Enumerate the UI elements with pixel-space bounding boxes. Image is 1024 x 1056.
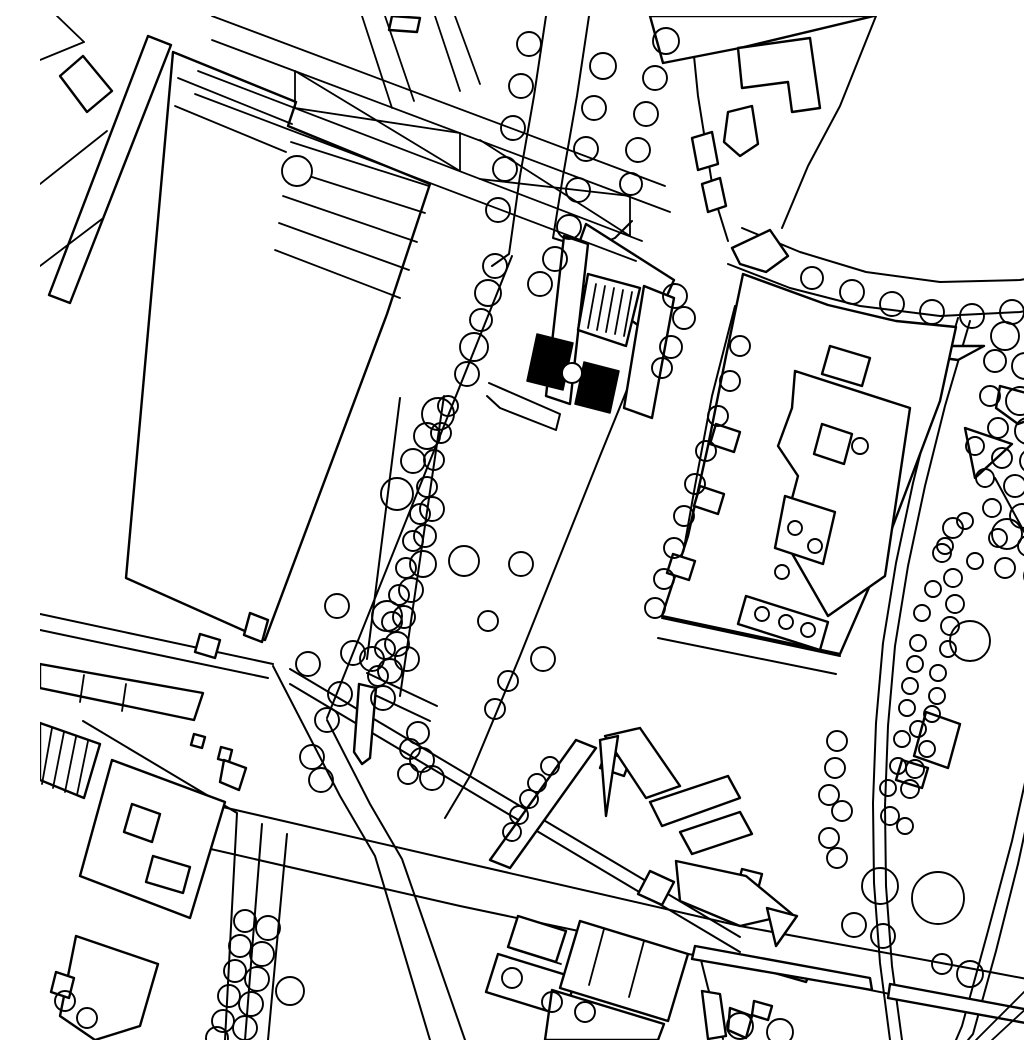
tree-icon — [881, 807, 899, 825]
tree-icon — [509, 74, 533, 98]
tree-icon — [399, 578, 423, 602]
tree-icon — [509, 552, 533, 576]
tree-icon — [899, 700, 915, 716]
tree-icon — [929, 688, 945, 704]
tree-icon — [950, 621, 990, 661]
building-footprint — [767, 908, 797, 946]
tree-icon — [381, 478, 413, 510]
tree-icon — [880, 780, 896, 796]
tree-icon — [894, 731, 910, 747]
tree-icon — [403, 531, 423, 551]
detail-line — [455, 16, 480, 84]
building-footprint — [389, 16, 420, 32]
tree-icon — [378, 659, 402, 683]
tree-icon — [634, 102, 658, 126]
tree-icon — [827, 848, 847, 868]
tree-icon — [944, 569, 962, 587]
tree-icon — [438, 396, 458, 416]
tree-icon — [995, 558, 1015, 578]
tree-icon — [460, 333, 488, 361]
building-footprint — [191, 734, 205, 748]
tree-icon — [414, 423, 440, 449]
tree-icon — [862, 868, 898, 904]
tree-icon — [654, 569, 674, 589]
road-edge — [273, 666, 430, 1040]
building-footprint — [60, 56, 112, 112]
tree-icon — [840, 280, 864, 304]
tree-icon — [991, 322, 1019, 350]
building-footprint — [738, 38, 820, 112]
layer-building-footprints — [40, 16, 1024, 1040]
building-footprint — [244, 613, 268, 642]
tree-icon — [930, 665, 946, 681]
tree-icon — [382, 612, 402, 632]
detail-line — [362, 16, 392, 108]
tree-icon — [483, 254, 507, 278]
tree-icon — [562, 363, 582, 383]
building-footprint — [638, 871, 674, 905]
detail-line — [295, 108, 460, 133]
detail-line — [435, 16, 460, 91]
tree-icon — [517, 32, 541, 56]
tree-icon — [620, 173, 642, 195]
building-footprint — [508, 916, 566, 962]
tree-icon — [967, 553, 983, 569]
tree-icon — [309, 768, 333, 792]
tree-icon — [940, 641, 956, 657]
tree-icon — [983, 499, 1001, 517]
tree-icon — [455, 362, 479, 386]
tree-icon — [407, 722, 429, 744]
tree-icon — [960, 304, 984, 328]
tree-icon — [825, 758, 845, 778]
tree-icon — [976, 469, 994, 487]
tree-icon — [498, 671, 518, 691]
tree-icon — [401, 449, 425, 473]
tree-icon — [626, 138, 650, 162]
tree-icon — [819, 828, 839, 848]
building-footprint — [888, 984, 1024, 1026]
building-footprint — [702, 178, 726, 212]
tree-icon — [801, 267, 823, 289]
tree-icon — [325, 594, 349, 618]
site-plan-figure — [40, 16, 1024, 1040]
tree-icon — [229, 935, 251, 957]
tree-icon — [250, 942, 274, 966]
tree-icon — [645, 598, 665, 618]
tree-icon — [1004, 475, 1024, 497]
tree-icon — [674, 506, 694, 526]
tree-icon — [256, 916, 280, 940]
road-edge — [968, 628, 1024, 1040]
tree-icon — [910, 635, 926, 651]
tree-icon — [880, 292, 904, 316]
tree-icon — [239, 992, 263, 1016]
tree-icon — [478, 611, 498, 631]
building-footprint — [60, 936, 158, 1040]
tree-icon — [1012, 353, 1024, 379]
building-footprint — [578, 274, 640, 346]
building-footprint — [126, 52, 430, 640]
tree-icon — [827, 731, 847, 751]
tree-icon — [410, 748, 434, 772]
building-footprint — [724, 106, 758, 156]
tree-icon — [643, 66, 667, 90]
detail-line — [40, 42, 84, 60]
tree-icon — [673, 307, 695, 329]
building-footprint — [702, 991, 726, 1039]
site-plan-canvas — [40, 16, 1024, 1040]
tree-icon — [486, 198, 510, 222]
tree-icon — [984, 350, 1006, 372]
tree-icon — [590, 53, 616, 79]
tree-icon — [398, 764, 418, 784]
building-footprint — [354, 684, 376, 764]
building-footprint — [752, 1001, 772, 1020]
tree-icon — [528, 272, 552, 296]
tree-icon — [234, 910, 256, 932]
tree-icon — [574, 137, 598, 161]
tree-icon — [218, 985, 240, 1007]
tree-icon — [245, 967, 269, 991]
building-footprint — [732, 230, 788, 272]
building-footprint — [51, 972, 74, 998]
tree-icon — [832, 801, 852, 821]
tree-icon — [897, 818, 913, 834]
building-footprint — [195, 634, 220, 658]
tree-icon — [912, 872, 964, 924]
tree-icon — [282, 156, 312, 186]
tree-icon — [871, 924, 895, 948]
road-edge — [553, 16, 632, 249]
building-footprint — [600, 736, 618, 816]
tree-icon — [470, 309, 492, 331]
tree-icon — [493, 157, 517, 181]
building-footprint — [40, 723, 100, 798]
building-footprint — [220, 760, 246, 790]
tree-icon — [276, 977, 304, 1005]
tree-icon — [420, 497, 444, 521]
tree-icon — [296, 652, 320, 676]
detail-line — [57, 16, 84, 42]
tree-icon — [988, 418, 1008, 438]
road-edge — [492, 16, 546, 266]
tree-icon — [449, 546, 479, 576]
tree-icon — [907, 656, 923, 672]
tree-icon — [842, 913, 866, 937]
tree-icon — [1020, 449, 1024, 473]
building-footprint — [692, 132, 718, 170]
tree-icon — [957, 961, 983, 987]
tree-icon — [920, 300, 944, 324]
tree-icon — [902, 678, 918, 694]
tree-icon — [767, 1019, 793, 1040]
tree-icon — [582, 96, 606, 120]
tree-icon — [1018, 536, 1024, 556]
building-footprint — [680, 812, 752, 854]
tree-icon — [224, 960, 246, 982]
tree-icon — [925, 581, 941, 597]
building-footprint — [692, 946, 872, 990]
tree-icon — [946, 595, 964, 613]
tree-icon — [396, 558, 416, 578]
tree-icon — [914, 605, 930, 621]
tree-icon — [531, 647, 555, 671]
